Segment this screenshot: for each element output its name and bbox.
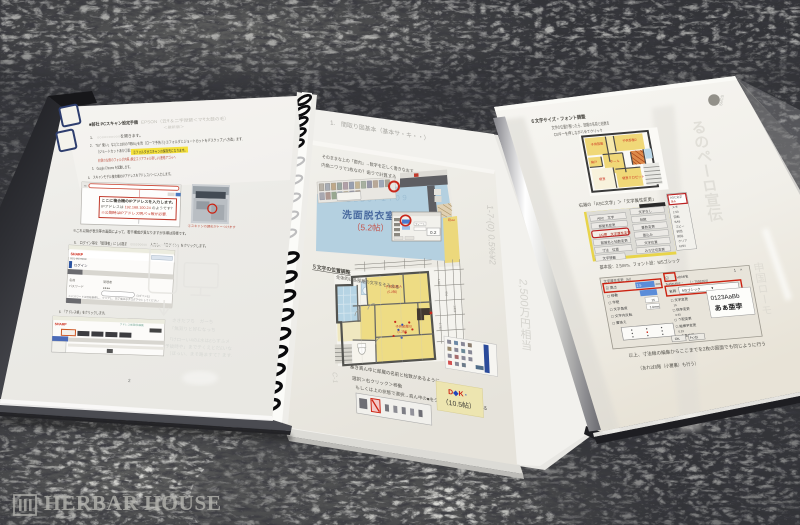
svg-text:明visc: 明visc: [448, 218, 456, 222]
svg-text:1,820: 1,820: [437, 279, 441, 287]
svg-text:☑ 高さ: ☑ 高さ: [605, 285, 618, 291]
svg-text:＜最新版＞: ＜最新版＞: [163, 124, 185, 130]
svg-text:置込み: 置込み: [642, 232, 654, 238]
svg-text:削除: 削除: [677, 233, 684, 238]
svg-text:コピー: コピー: [675, 223, 685, 229]
svg-text:●●●●: ●●●●: [103, 286, 111, 290]
svg-text:1:50: 1:50: [672, 210, 679, 214]
svg-text:HDMI名: HDMI名: [676, 274, 689, 280]
svg-text:6294: 6294: [679, 244, 687, 249]
svg-text:フィート: フィート: [415, 222, 426, 226]
svg-text:寝室: 寝室: [599, 176, 606, 181]
svg-text:管理者: 管理者: [103, 279, 112, 284]
svg-text:納戸: 納戸: [590, 159, 597, 164]
svg-text:クリア: クリア: [678, 238, 688, 244]
svg-text:名前: 名前: [69, 277, 75, 282]
svg-text:子供部屋Ｂ: 子供部屋Ｂ: [395, 323, 412, 328]
svg-text:2.5: 2.5: [636, 283, 642, 287]
svg-text:メモ: メモ: [672, 205, 679, 209]
svg-text:名称: 名称: [669, 288, 677, 294]
svg-text:SHARP: SHARP: [55, 322, 68, 326]
svg-text:0.2: 0.2: [430, 230, 437, 235]
svg-text:ｷｬﾝｾﾙ: ｷｬﾝｾﾙ: [689, 334, 699, 340]
svg-text:回転: 回転: [673, 215, 680, 219]
svg-text:ログイン: ログイン: [74, 262, 88, 268]
svg-text:1 ×: 1 ×: [733, 267, 743, 273]
svg-text:あA: あA: [670, 198, 676, 203]
svg-text:◻ 字壁: ◻ 字壁: [608, 299, 620, 305]
svg-text:前回: 前回: [676, 228, 683, 233]
svg-text:1.0mm: 1.0mm: [649, 305, 660, 310]
svg-text:ホール: ホール: [609, 158, 619, 164]
svg-text:◻ 移動: ◻ 移動: [607, 292, 619, 298]
svg-text:BA9: BA9: [674, 220, 681, 224]
svg-text:HERBAR HOUSE: HERBAR HOUSE: [44, 491, 221, 515]
svg-text:(5.2帖): (5.2帖): [387, 289, 397, 294]
svg-text:パスワード: パスワード: [69, 283, 84, 289]
svg-text:SHARP: SHARP: [70, 252, 83, 257]
svg-text:1,820: 1,820: [453, 305, 457, 313]
svg-text:2,730: 2,730: [438, 323, 442, 331]
svg-text:C-1: C-1: [331, 371, 338, 383]
svg-text:910: 910: [444, 291, 448, 296]
svg-text:（5.2帖）: （5.2帖）: [352, 222, 389, 233]
svg-text:ログイン(L): ログイン(L): [136, 294, 150, 299]
